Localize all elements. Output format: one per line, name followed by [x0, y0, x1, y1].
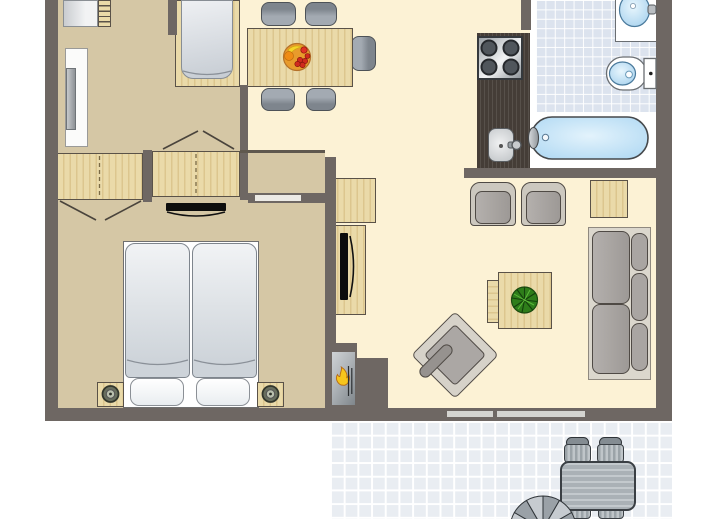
closet-left	[57, 153, 143, 200]
fireplace-insert	[332, 352, 355, 405]
wall-bathroom-bottom	[464, 168, 672, 178]
sliding-door-strip-1	[447, 411, 493, 417]
bunk-bed	[63, 0, 98, 27]
sofa-bolster-1	[631, 233, 648, 271]
vestibule-edge-line	[240, 150, 325, 153]
sofa-bolster-2	[631, 273, 648, 321]
living-tv	[340, 233, 348, 300]
outdoor-table	[560, 461, 636, 511]
coffee-table	[498, 272, 552, 329]
armchair-1-cushion	[475, 191, 511, 224]
wall-left	[45, 0, 58, 421]
mattress-left	[125, 243, 190, 378]
wall-closet-right-side	[240, 85, 248, 200]
side-table	[590, 180, 628, 218]
dining-chair-top-1	[261, 2, 296, 26]
stove	[477, 36, 523, 80]
master-bedroom-door	[255, 195, 301, 201]
dining-chair-right	[351, 36, 376, 71]
floor-plan	[0, 0, 713, 519]
wall-kitchen-bath-stub	[521, 0, 531, 30]
sideboard	[331, 178, 376, 223]
nightstand-left	[97, 382, 124, 407]
dining-chair-bottom-1	[261, 88, 295, 111]
tv-cabinet	[331, 225, 366, 315]
closet-right	[152, 151, 240, 197]
wardrobe-door	[66, 68, 76, 130]
bathtub-zone-floor	[530, 112, 656, 168]
chimney-block-b	[355, 358, 388, 408]
pillow-right	[196, 378, 250, 406]
mattress-right	[192, 243, 257, 378]
wall-bedroom2-stub	[168, 0, 177, 35]
bunk-ladder	[98, 0, 111, 27]
dining-table	[247, 28, 353, 87]
sliding-door-strip-2	[497, 411, 585, 417]
dining-chair-top-2	[305, 2, 337, 26]
single-bed-mattress	[181, 0, 233, 79]
kitchen-sink	[488, 128, 514, 162]
wall-right	[656, 0, 672, 408]
wall-between-closets	[143, 150, 152, 202]
dining-chair-bottom-2	[306, 88, 336, 111]
sofa-cushion-1	[592, 231, 630, 304]
pillow-left	[130, 378, 184, 406]
sofa-cushion-2	[592, 304, 630, 374]
nightstand-right	[257, 382, 284, 407]
washbasin-counter	[615, 0, 656, 42]
sofa-bolster-3	[631, 323, 648, 371]
bedroom-tv	[166, 203, 226, 211]
armchair-2-cushion	[526, 191, 561, 224]
